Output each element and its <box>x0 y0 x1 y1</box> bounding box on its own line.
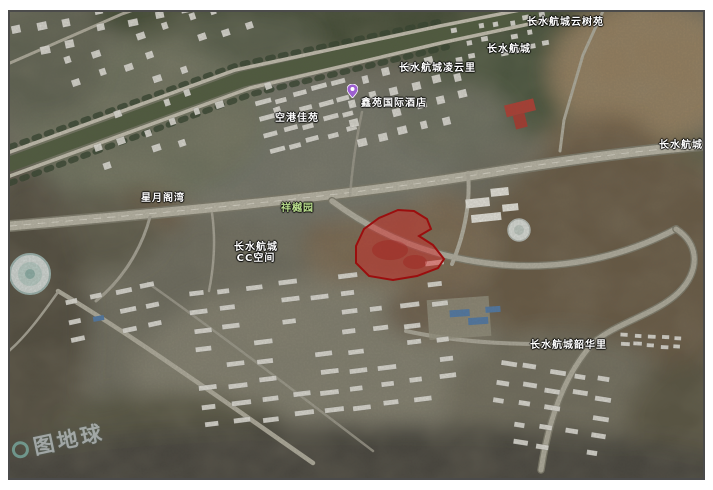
map-canvas[interactable]: 长水航城云树苑 长水航城 长水航城凌云里 鑫苑国际酒店 空港佳苑 长水航城 星月… <box>8 10 705 480</box>
parcel-shade <box>372 240 408 260</box>
screenshot-stage: 长水航城云树苑 长水航城 长水航城凌云里 鑫苑国际酒店 空港佳苑 长水航城 星月… <box>0 0 713 490</box>
hotel-pin-icon[interactable] <box>347 84 358 98</box>
parcel-shade <box>403 255 427 269</box>
satellite-image <box>10 12 703 478</box>
